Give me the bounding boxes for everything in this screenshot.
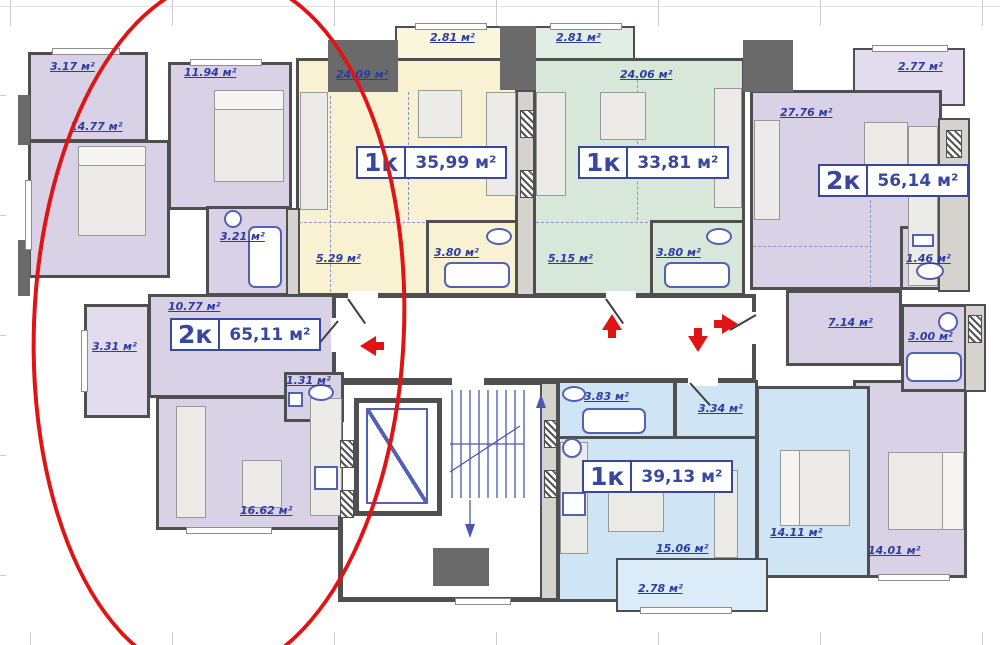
wall-block bbox=[500, 26, 536, 90]
red-arrow-up-icon bbox=[602, 314, 622, 338]
grid-tick bbox=[334, 632, 335, 645]
apartment-type: 1к bbox=[584, 462, 632, 491]
window bbox=[640, 607, 732, 614]
wall-block bbox=[743, 40, 793, 92]
vent-hatch-icon bbox=[544, 470, 557, 498]
wall-block bbox=[18, 95, 30, 145]
room-area-label: 14.11 м² bbox=[770, 526, 822, 539]
stairs-icon bbox=[448, 388, 560, 546]
table bbox=[608, 492, 664, 532]
zone-divider bbox=[753, 246, 868, 247]
vent-hatch-icon bbox=[520, 170, 534, 198]
vent-hatch-icon bbox=[968, 315, 982, 343]
red-arrow-right-icon bbox=[714, 314, 738, 334]
apartment-area: 35,99 м² bbox=[406, 148, 505, 177]
door-gap bbox=[452, 376, 484, 386]
bed-pillow bbox=[942, 452, 964, 530]
grid-tick bbox=[0, 95, 6, 96]
room-area-label: 3.83 м² bbox=[584, 390, 629, 403]
apartment-area: 56,14 м² bbox=[868, 166, 967, 195]
grid-tick bbox=[658, 632, 659, 645]
apartment-badge-2k-56: 2к 56,14 м² bbox=[818, 164, 969, 197]
room-area-label: 7.14 м² bbox=[828, 316, 873, 329]
window bbox=[872, 45, 948, 52]
grid-tick bbox=[820, 0, 821, 26]
vent-hatch-icon bbox=[520, 110, 534, 138]
grid-tick bbox=[982, 632, 983, 645]
room-area-label: 3.34 м² bbox=[698, 402, 743, 415]
room-area-label: 3.80 м² bbox=[656, 246, 701, 259]
toilet bbox=[706, 228, 732, 245]
room-area-label: 2.78 м² bbox=[638, 582, 683, 595]
bathtub bbox=[444, 262, 510, 288]
kitchen-counter bbox=[536, 92, 566, 196]
window bbox=[25, 180, 32, 250]
room-area-label: 5.15 м² bbox=[548, 252, 593, 265]
apartment-area: 39,13 м² bbox=[632, 462, 731, 491]
room-area-label: 3.00 м² bbox=[908, 330, 953, 343]
grid-tick bbox=[30, 632, 31, 645]
grid-tick bbox=[982, 0, 983, 26]
grid-tick bbox=[496, 632, 497, 645]
door-gap bbox=[606, 291, 636, 300]
bathtub bbox=[664, 262, 730, 288]
room-area-label: 2.81 м² bbox=[556, 31, 601, 44]
red-arrow-left-icon bbox=[360, 336, 384, 356]
apartment-badge-1k-39: 1к 39,13 м² bbox=[582, 460, 733, 493]
grid-tick bbox=[496, 0, 497, 26]
room-area-label: 3.80 м² bbox=[434, 246, 479, 259]
wall-block bbox=[433, 548, 489, 586]
entrance-window bbox=[455, 598, 511, 605]
grid-tick bbox=[334, 0, 335, 26]
kitchen-counter bbox=[486, 92, 516, 196]
room-area-label: 3.17 м² bbox=[50, 60, 95, 73]
table bbox=[418, 90, 462, 138]
zone-divider bbox=[870, 200, 871, 288]
table bbox=[600, 92, 646, 140]
apartment-badge-1k-33: 1к 33,81 м² bbox=[578, 146, 729, 179]
room-area-label: 27.76 м² bbox=[780, 106, 832, 119]
stove-icon bbox=[562, 492, 586, 516]
grid-tick bbox=[0, 335, 6, 336]
apartment-type: 1к bbox=[580, 148, 628, 177]
grid-tick bbox=[10, 0, 11, 26]
zone-divider bbox=[536, 222, 648, 223]
bathtub bbox=[906, 352, 962, 382]
room-area-label: 14.01 м² bbox=[868, 544, 920, 557]
wardrobe bbox=[754, 120, 780, 220]
grid-tick bbox=[658, 0, 659, 26]
room-area-label: 2.77 м² bbox=[898, 60, 943, 73]
room-area-label: 1.46 м² bbox=[906, 252, 951, 265]
window bbox=[415, 23, 487, 30]
washer-icon bbox=[562, 438, 582, 458]
red-arrow-down-icon bbox=[688, 328, 708, 352]
room-area-label: 2.81 м² bbox=[430, 31, 475, 44]
grid-tick bbox=[820, 632, 821, 645]
grid-tick bbox=[0, 575, 6, 576]
sink bbox=[938, 312, 958, 332]
bathtub bbox=[582, 408, 646, 434]
window bbox=[550, 23, 622, 30]
vent-hatch-icon bbox=[544, 420, 557, 448]
apartment-area: 33,81 м² bbox=[628, 148, 727, 177]
floor-plan: 3.17 м² 11.94 м² 14.77 м² 3.21 м² 10.77 … bbox=[0, 0, 1000, 645]
sink bbox=[912, 234, 934, 247]
toilet bbox=[562, 386, 586, 402]
room-area-label: 24.06 м² bbox=[620, 68, 672, 81]
bed-pillow bbox=[780, 450, 800, 526]
grid-tick bbox=[0, 455, 6, 456]
toilet bbox=[486, 228, 512, 245]
window bbox=[878, 574, 950, 581]
grid-tick bbox=[0, 215, 6, 216]
apartment-type: 2к bbox=[820, 166, 868, 195]
table bbox=[864, 122, 908, 166]
room-area-label: 15.06 м² bbox=[656, 542, 708, 555]
vent-hatch-icon bbox=[946, 130, 962, 158]
